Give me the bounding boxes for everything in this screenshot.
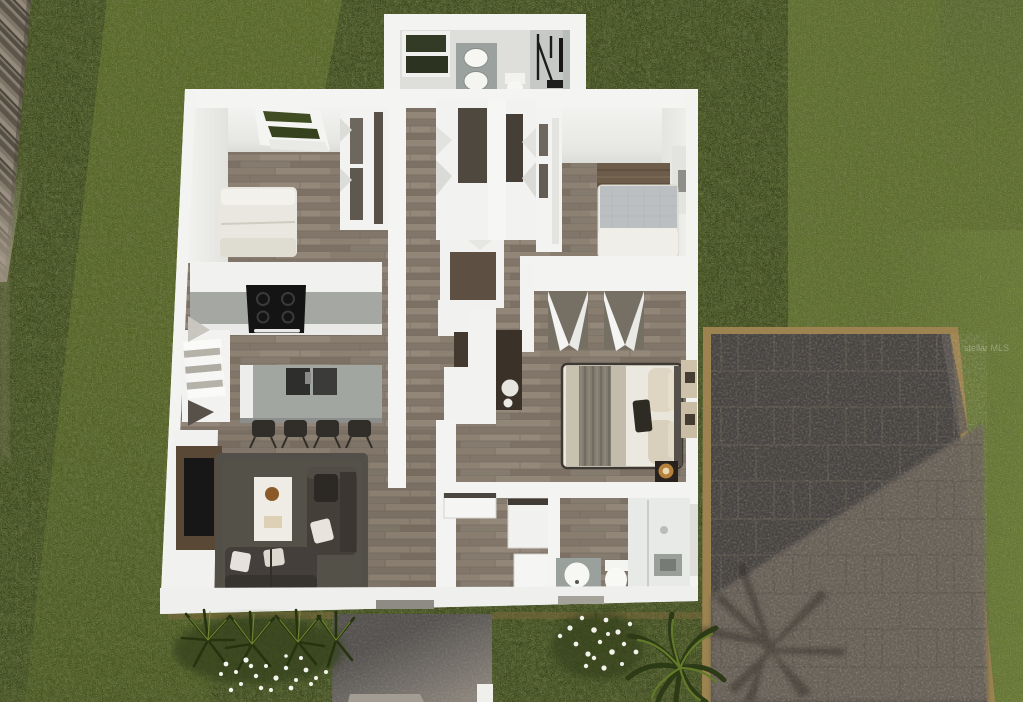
svg-text:stellar MLS: stellar MLS xyxy=(964,343,1009,353)
